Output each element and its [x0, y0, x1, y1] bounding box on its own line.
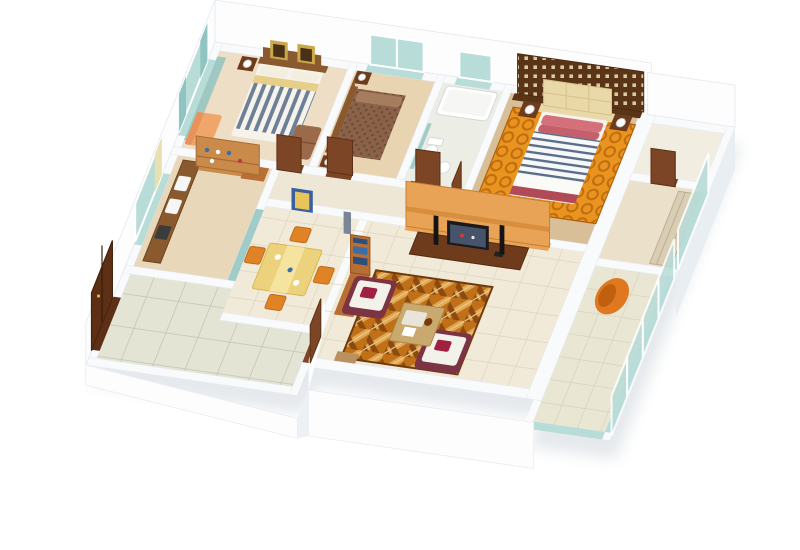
shelf-bottle-3 [227, 151, 231, 155]
floorplan-3d-render [0, 0, 800, 550]
tv-screen-red [460, 234, 464, 238]
dining-vase [344, 211, 351, 234]
bathroom-door-leaf [416, 149, 440, 187]
bathroom-window [459, 51, 491, 82]
tv-screen-white [471, 236, 474, 239]
shelf-bottle-5 [210, 159, 214, 163]
shelf-bottle-4 [238, 159, 242, 163]
bedroom1-door-leaf [277, 135, 301, 174]
shelf-bottle-2 [216, 150, 220, 154]
dining-art-inner [295, 192, 309, 211]
main-door-knob [97, 294, 100, 297]
bookshelf-unit [351, 235, 370, 276]
shelf-bottle-1 [205, 148, 209, 152]
bedroom2-door-leaf [327, 137, 352, 176]
speaker-left [434, 215, 439, 245]
dressing-door-leaf [651, 148, 675, 187]
bed1-picture-art-1 [273, 44, 285, 58]
bed1-picture-art-2 [300, 48, 312, 62]
speaker-right [500, 225, 505, 255]
floorplan-svg [0, 0, 800, 550]
